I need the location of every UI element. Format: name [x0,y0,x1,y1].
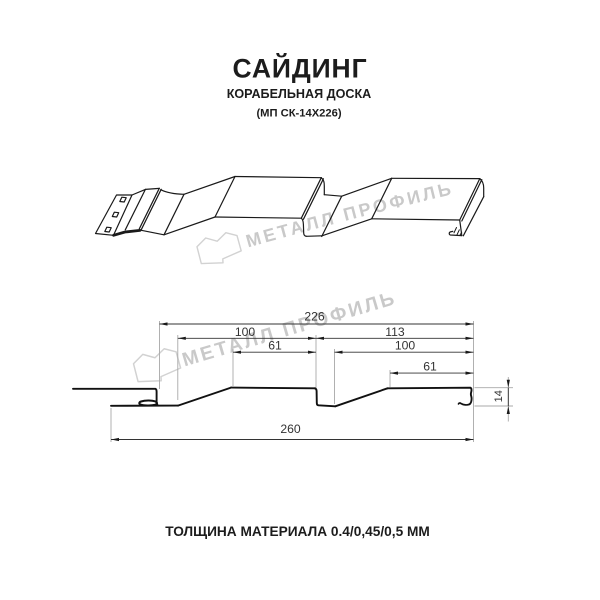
svg-text:61: 61 [423,359,437,373]
svg-text:100: 100 [235,325,256,339]
svg-text:САЙДИНГ: САЙДИНГ [232,54,367,84]
svg-text:100: 100 [395,339,416,353]
svg-text:61: 61 [268,339,282,353]
svg-text:260: 260 [280,422,301,436]
svg-text:14: 14 [493,390,505,402]
svg-text:ТОЛЩИНА МАТЕРИАЛА 0.4/0,45/0,5: ТОЛЩИНА МАТЕРИАЛА 0.4/0,45/0,5 ММ [165,524,430,539]
svg-text:226: 226 [304,310,325,324]
svg-text:(МП СК-14Х226): (МП СК-14Х226) [256,107,341,119]
svg-text:КОРАБЕЛЬНАЯ ДОСКА: КОРАБЕЛЬНАЯ ДОСКА [227,87,372,101]
svg-text:113: 113 [385,325,405,339]
